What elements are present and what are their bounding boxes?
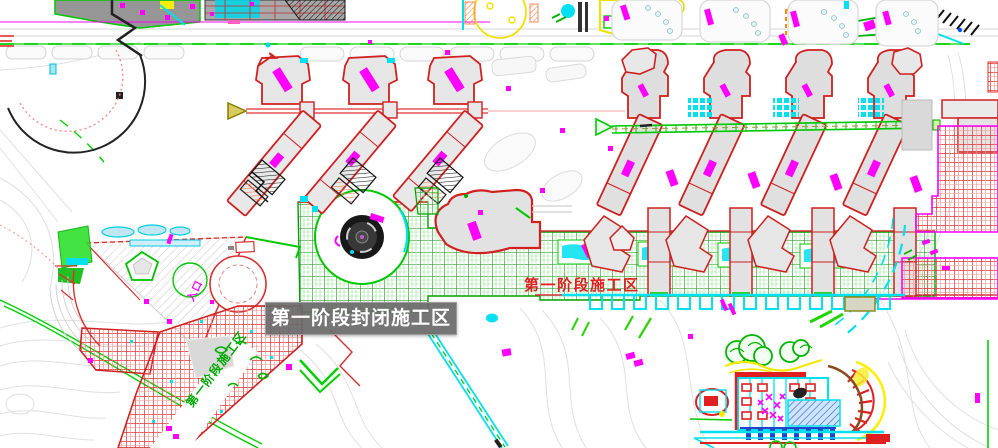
top-left-building-complex [0, 0, 490, 153]
planter-beds [604, 0, 938, 46]
clubhouse-complex [688, 334, 980, 448]
green-band-zone-label: 第一阶段施工区 [524, 276, 640, 294]
closed-zone-tooltip-text: 第一阶段封闭施工区 [271, 308, 451, 329]
site-plan-canvas[interactable]: 第一阶段施工区 [0, 0, 998, 448]
top-roundabout-feature [463, 0, 538, 38]
closed-zone-tooltip: 第一阶段封闭施工区 [265, 302, 457, 335]
site-plan-drawing: 第一阶段施工区 [0, 0, 998, 448]
cyan-trellis-band [562, 295, 905, 336]
